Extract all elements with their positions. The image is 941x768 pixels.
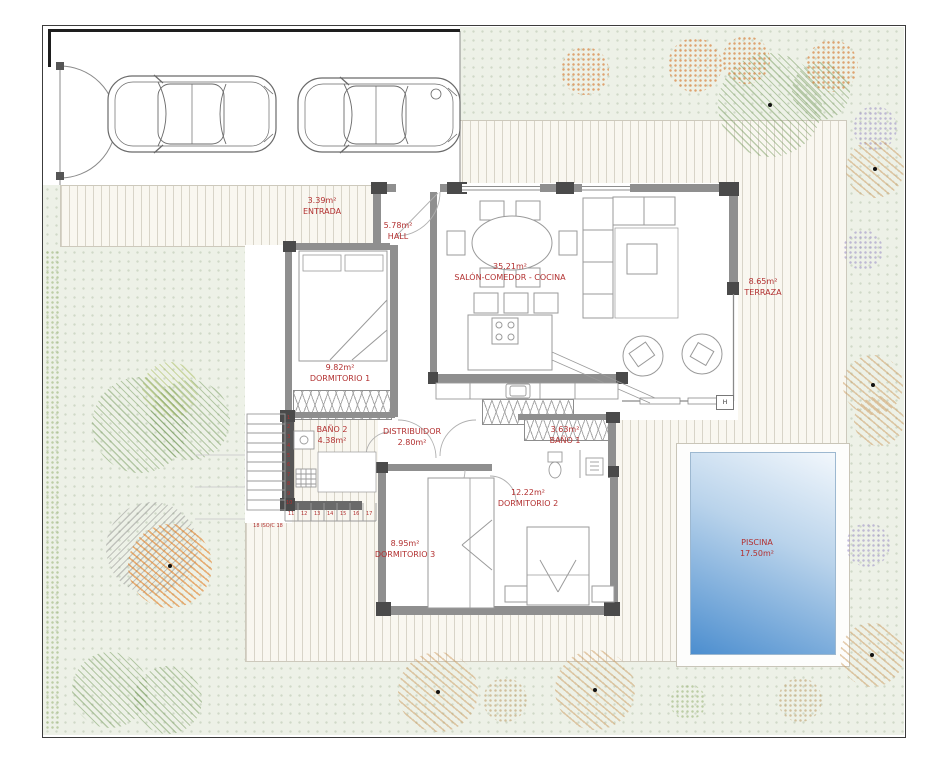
stair-step-number: 11 (288, 512, 294, 517)
label-entrada: 3.39m² ENTRADA (303, 196, 341, 218)
label-bano1: 3.63m² BAÑO 1 (550, 425, 581, 447)
stair-step-number: 9 (287, 492, 290, 497)
stair-step-number: 12 (301, 512, 307, 517)
stair-step-number: 13 (314, 512, 320, 517)
boundary-wall-left (48, 29, 51, 67)
stair-step-number: 15 (340, 512, 346, 517)
stair-step-number: 4 (287, 444, 290, 449)
stair-step-number: 6 (287, 463, 290, 468)
label-distribuidor: DISTRIBUIDOR 2.80m² (383, 427, 441, 449)
label-dormitorio3: 8.95m² DORMITORIO 3 (375, 539, 435, 561)
stair-step-number: 16 (353, 512, 359, 517)
label-hall: 5.78m² HALL (384, 221, 413, 243)
stair-step-number: 7 (287, 473, 290, 478)
stair-step-number: 5 (287, 454, 290, 459)
plot-boundary (42, 25, 906, 738)
stair-step-number: 1 (287, 416, 290, 421)
stair-step-number: 17 (366, 512, 372, 517)
label-dormitorio2: 12.22m² DORMITORIO 2 (498, 488, 558, 510)
stair-note: 18 ISO/C 18 (253, 523, 283, 529)
stair-step-number: 10 (286, 501, 292, 506)
stair-step-number: 2 (287, 425, 290, 430)
label-bano2: BAÑO 2 4.38m² (317, 425, 348, 447)
stair-step-number: 3 (287, 435, 290, 440)
label-dormitorio1: 9.82m² DORMITORIO 1 (310, 363, 370, 385)
label-terraza: 8.65m² TERRAZA (744, 277, 781, 299)
label-piscina: PISCINA 17.50m² (740, 538, 774, 560)
column-marker-h: H (716, 395, 734, 410)
floor-plan: 3.39m² ENTRADA 5.78m² HALL 35.21m² SALÓN… (0, 0, 941, 768)
boundary-wall-top (48, 29, 460, 32)
stair-step-number: 8 (287, 482, 290, 487)
label-salon: 35.21m² SALÓN-COMEDOR - COCINA (454, 262, 565, 284)
stair-step-number: 14 (327, 512, 333, 517)
